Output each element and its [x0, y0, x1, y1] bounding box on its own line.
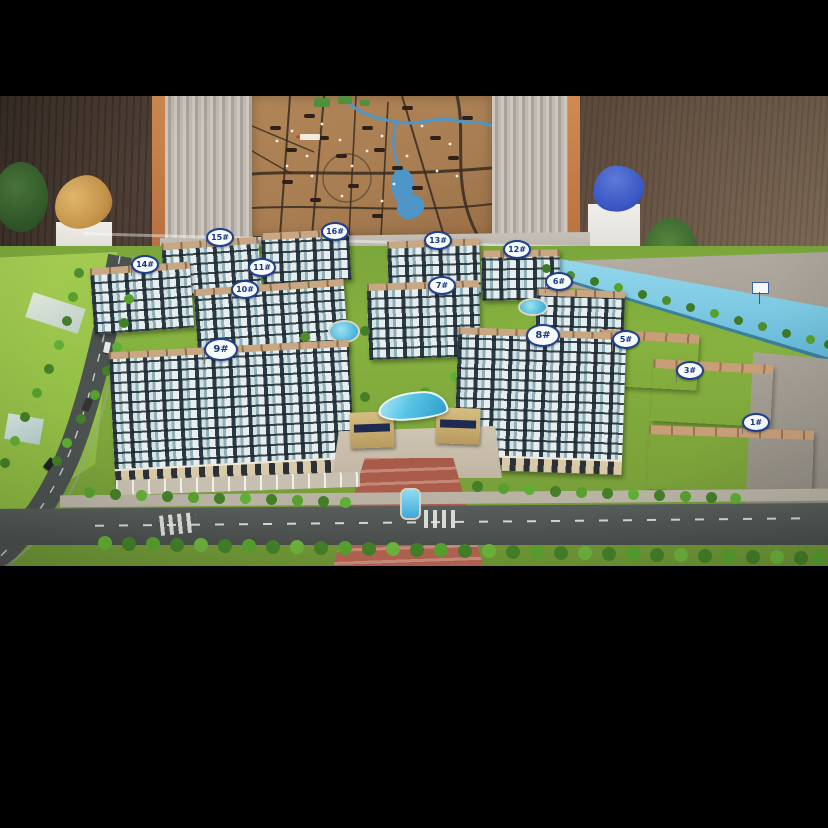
canal-signboard: [752, 282, 769, 294]
canal-signboard-pole: [759, 292, 760, 304]
crosswalk: [424, 510, 456, 528]
swimming-pool-right: [520, 300, 546, 314]
map-road-labels: [270, 106, 473, 218]
townhouse-building-1: [647, 425, 814, 495]
crosswalk: [159, 512, 197, 536]
map-project-marker: [296, 134, 320, 140]
map-lake: [392, 168, 425, 219]
map-river: [344, 96, 492, 219]
canal-bank-bushes: [542, 264, 551, 273]
boulevard-water-feature: [402, 490, 419, 518]
photo-architectural-model: 15# 16# 13# 12# 14# 11# 10# 7# 6# 9# 8# …: [0, 0, 828, 828]
location-map-graphic: [252, 96, 492, 236]
courtyard-trees: [300, 332, 310, 342]
tree-row-front-right: [472, 481, 483, 492]
tree-row-front-left: [84, 487, 95, 498]
apartment-building-9: [109, 340, 356, 484]
tree-row-left-road-east: [124, 294, 134, 304]
location-map-panel: [252, 96, 492, 236]
swimming-pool-small: [330, 322, 358, 341]
tree-row-bottom: [98, 536, 112, 550]
map-park-areas: [314, 96, 370, 107]
letterbox-top: [0, 0, 828, 96]
tree-row-left-road-west: [74, 268, 84, 278]
letterbox-bottom: [0, 566, 828, 828]
